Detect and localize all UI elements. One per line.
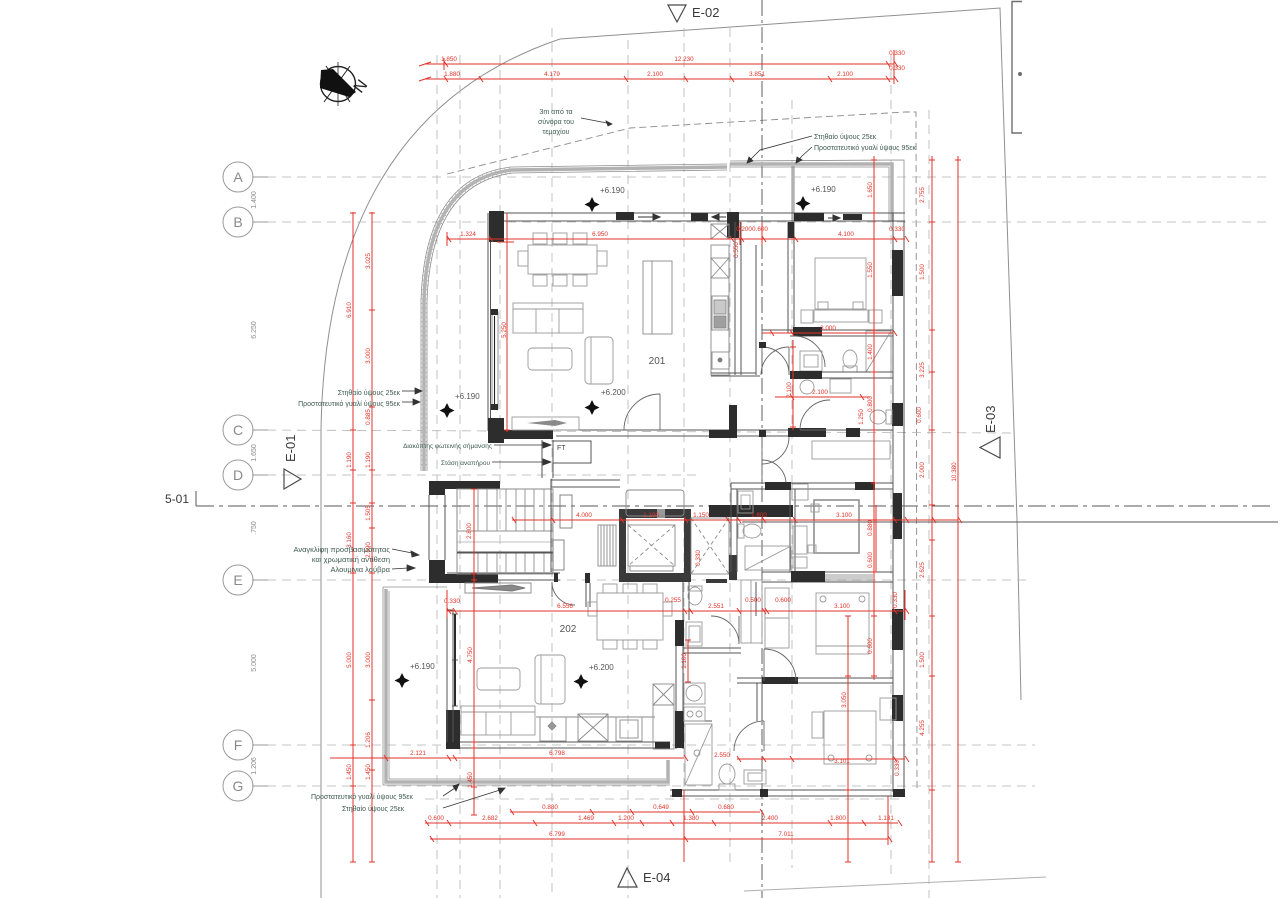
svg-text:0.600: 0.600 — [752, 226, 768, 233]
svg-text:3.101: 3.101 — [834, 758, 850, 765]
svg-text:τεμαχίου: τεμαχίου — [543, 128, 570, 136]
svg-text:0.600: 0.600 — [916, 407, 923, 423]
svg-text:1.206: 1.206 — [365, 732, 372, 748]
svg-text:D: D — [233, 467, 243, 483]
svg-text:2.800: 2.800 — [466, 523, 473, 539]
svg-text:E-02: E-02 — [692, 5, 719, 20]
svg-text:2.755: 2.755 — [919, 187, 926, 203]
svg-text:0.550: 0.550 — [733, 242, 740, 258]
svg-text:2.000: 2.000 — [919, 462, 926, 478]
svg-text:0.680: 0.680 — [718, 804, 734, 811]
svg-text:0.330: 0.330 — [695, 550, 702, 566]
svg-text:3.851: 3.851 — [749, 71, 765, 78]
svg-text:1.190: 1.190 — [365, 452, 372, 468]
svg-text:+6.190: +6.190 — [455, 392, 480, 401]
svg-text:0.330: 0.330 — [889, 226, 905, 233]
svg-text:E-01: E-01 — [283, 435, 298, 462]
svg-text:2.551: 2.551 — [708, 603, 724, 610]
svg-text:1.131: 1.131 — [878, 815, 894, 822]
svg-text:0.200: 0.200 — [736, 226, 752, 233]
svg-text:1.200: 1.200 — [618, 815, 634, 822]
svg-text:5.000: 5.000 — [346, 652, 353, 668]
svg-text:F: F — [234, 737, 243, 753]
svg-text:12.230: 12.230 — [674, 56, 694, 63]
svg-text:6.799: 6.799 — [549, 831, 565, 838]
svg-text:και χρωματική αντίθεση: και χρωματική αντίθεση — [312, 555, 390, 564]
svg-text:2.121: 2.121 — [410, 750, 426, 757]
svg-text:Στάση αναπήρου: Στάση αναπήρου — [441, 459, 491, 467]
svg-text:0.330: 0.330 — [889, 50, 905, 57]
svg-text:Προστατευτικό γυαλί ύψους 95εκ: Προστατευτικό γυαλί ύψους 95εκ — [298, 400, 400, 408]
svg-text:2.100: 2.100 — [786, 382, 793, 398]
svg-text:Προστατευτικό γυαλί ύψους 95εκ: Προστατευτικό γυαλί ύψους 95εκ — [311, 793, 413, 801]
svg-text:1.650: 1.650 — [251, 444, 258, 462]
svg-text:2.400: 2.400 — [762, 815, 778, 822]
svg-text:3.000: 3.000 — [365, 348, 372, 364]
svg-text:Στηθαίο ύψους 25εκ: Στηθαίο ύψους 25εκ — [814, 133, 877, 141]
svg-text:B: B — [233, 214, 242, 230]
svg-text:4.255: 4.255 — [919, 720, 926, 736]
svg-text:6.798: 6.798 — [549, 750, 565, 757]
svg-text:0.330: 0.330 — [444, 598, 460, 605]
svg-text:A: A — [233, 169, 243, 185]
svg-text:+6.190: +6.190 — [410, 662, 435, 671]
svg-text:+6.190: +6.190 — [811, 185, 836, 194]
svg-text:1.380: 1.380 — [683, 815, 699, 822]
svg-text:Προστατευτικό γυαλί ύψους 95εκ: Προστατευτικό γυαλί ύψους 95εκ — [814, 144, 916, 152]
svg-text:Αναγκλίφη προσβασιμότητας: Αναγκλίφη προσβασιμότητας — [293, 545, 390, 554]
svg-text:2.100: 2.100 — [812, 389, 828, 396]
svg-text:1.450: 1.450 — [346, 764, 353, 780]
svg-text:2.100: 2.100 — [837, 71, 853, 78]
svg-text:0.330: 0.330 — [894, 760, 901, 776]
svg-text:3.100: 3.100 — [834, 603, 850, 610]
svg-text:2.625: 2.625 — [919, 562, 926, 578]
svg-text:6.950: 6.950 — [592, 231, 608, 238]
svg-text:1.469: 1.469 — [578, 815, 594, 822]
svg-text:0.880: 0.880 — [542, 804, 558, 811]
svg-text:1.150: 1.150 — [693, 512, 709, 519]
svg-text:4.750: 4.750 — [467, 647, 474, 663]
svg-text:3.225: 3.225 — [919, 362, 926, 378]
svg-text:0.880: 0.880 — [867, 520, 874, 536]
svg-text:G: G — [233, 778, 244, 794]
svg-text:Διακόπτης φωτεινής σήμανσης: Διακόπτης φωτεινής σήμανσης — [403, 442, 492, 450]
svg-text:4.179: 4.179 — [544, 71, 560, 78]
svg-text:1.880: 1.880 — [444, 71, 460, 78]
svg-text:1.800: 1.800 — [830, 815, 846, 822]
svg-text:6.910: 6.910 — [346, 302, 353, 318]
svg-text:1.100: 1.100 — [681, 653, 688, 669]
svg-text:3.000: 3.000 — [365, 652, 372, 668]
svg-text:0.330: 0.330 — [892, 592, 899, 608]
svg-text:C: C — [233, 422, 243, 438]
svg-text:0.600: 0.600 — [867, 552, 874, 568]
svg-text:1.500: 1.500 — [919, 652, 926, 668]
svg-text:0.500: 0.500 — [745, 597, 761, 604]
svg-text:+6.200: +6.200 — [589, 663, 614, 672]
svg-text:FT: FT — [557, 445, 566, 452]
svg-text:1.250: 1.250 — [858, 409, 865, 425]
svg-text:1.100: 1.100 — [643, 512, 659, 519]
svg-text:0.600: 0.600 — [428, 815, 444, 822]
svg-text:E-04: E-04 — [643, 870, 670, 885]
svg-text:0.800: 0.800 — [867, 396, 874, 412]
svg-text:5-01: 5-01 — [165, 492, 189, 506]
svg-text:1.190: 1.190 — [346, 452, 353, 468]
svg-text:1.400: 1.400 — [867, 344, 874, 360]
svg-text:2.550: 2.550 — [714, 752, 730, 759]
svg-text:0.885: 0.885 — [365, 409, 372, 425]
svg-text:1.324: 1.324 — [460, 231, 476, 238]
svg-text:1.550: 1.550 — [867, 262, 874, 278]
svg-text:3.000: 3.000 — [820, 325, 836, 332]
svg-text:1.500: 1.500 — [919, 264, 926, 280]
svg-text:1.206: 1.206 — [251, 757, 258, 775]
svg-text:1.800: 1.800 — [751, 512, 767, 519]
svg-text:5.250: 5.250 — [501, 322, 508, 338]
svg-text:1.400: 1.400 — [251, 191, 258, 209]
svg-text:Αλουμίνια λούβρα: Αλουμίνια λούβρα — [330, 565, 390, 574]
svg-text:0.600: 0.600 — [867, 638, 874, 654]
svg-text:6.250: 6.250 — [251, 321, 258, 339]
svg-text:4.100: 4.100 — [838, 231, 854, 238]
svg-text:6.556: 6.556 — [557, 603, 573, 610]
svg-text:1.850: 1.850 — [441, 56, 457, 63]
svg-text:201: 201 — [649, 356, 666, 367]
svg-text:1.650: 1.650 — [867, 182, 874, 198]
svg-text:10.380: 10.380 — [951, 462, 958, 482]
svg-text:E-03: E-03 — [983, 406, 998, 433]
svg-text:3.050: 3.050 — [841, 692, 848, 708]
svg-text:+6.190: +6.190 — [600, 186, 625, 195]
svg-text:1.450: 1.450 — [467, 772, 474, 788]
svg-text:2.100: 2.100 — [647, 71, 663, 78]
svg-text:1.450: 1.450 — [365, 764, 372, 780]
svg-text:0.255: 0.255 — [665, 597, 681, 604]
svg-text:5.000: 5.000 — [251, 654, 258, 672]
svg-text:2.682: 2.682 — [482, 815, 498, 822]
svg-text:3m από τα: 3m από τα — [539, 108, 572, 116]
svg-text:0.600: 0.600 — [775, 597, 791, 604]
svg-text:3.100: 3.100 — [836, 512, 852, 519]
svg-text:7.011: 7.011 — [778, 831, 794, 838]
svg-text:0.330: 0.330 — [889, 65, 905, 72]
svg-text:3.025: 3.025 — [365, 253, 372, 269]
svg-text:+6.200: +6.200 — [601, 388, 626, 397]
svg-text:.750: .750 — [251, 521, 258, 535]
svg-text:0.649: 0.649 — [653, 804, 669, 811]
svg-text:Στηθαίο ύψους 25εκ: Στηθαίο ύψους 25εκ — [342, 805, 405, 813]
svg-text:4.000: 4.000 — [576, 512, 592, 519]
svg-text:1.505: 1.505 — [365, 505, 372, 521]
svg-text:E: E — [233, 572, 242, 588]
svg-text:σύνορα του: σύνορα του — [538, 118, 574, 126]
svg-text:202: 202 — [560, 624, 577, 635]
svg-text:Στηθαίο ύψους 25εκ: Στηθαίο ύψους 25εκ — [338, 389, 401, 397]
